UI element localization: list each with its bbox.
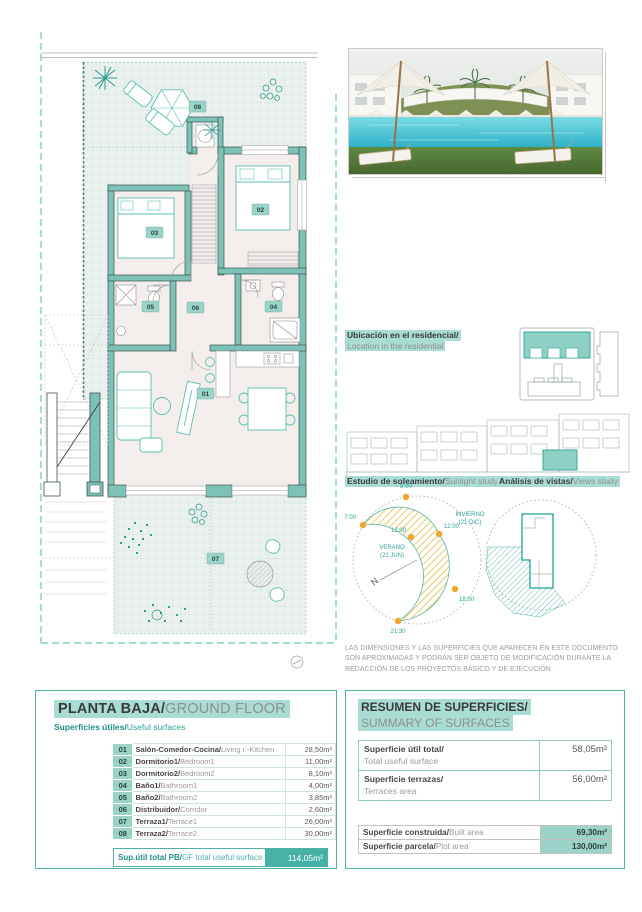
north-label: N	[369, 576, 380, 588]
summary-card: RESUMEN DE SUPERFICIES/ SUMMARY OF SURFA…	[345, 690, 625, 869]
table-row: 03Dormitorio2/Bedroom28,10m²	[114, 768, 336, 780]
room-label-04: 04	[265, 301, 282, 312]
table-row: Superficie terrazas/Terraces area 56,00m…	[359, 771, 612, 801]
svg-text:02: 02	[257, 207, 265, 214]
ground-floor-subtitle: Superficies útiles/Useful surfaces	[54, 722, 336, 732]
table-row: Superficie útil total/Total useful surfa…	[359, 741, 612, 771]
svg-text:(21 DIC): (21 DIC)	[459, 520, 482, 526]
room-label-03: 03	[146, 227, 163, 238]
svg-text:18:00: 18:00	[459, 597, 475, 603]
table-row: 02Dormitorio1/Bedroom111,00m²	[114, 756, 336, 768]
svg-text:7:00: 7:00	[344, 515, 356, 521]
photo-frame-line-right	[605, 52, 606, 182]
svg-text:01: 01	[202, 391, 210, 398]
highlighted-block	[524, 332, 590, 358]
table-row: 05Baño2/Bathroom23,85m²	[114, 792, 336, 804]
svg-text:8:00: 8:00	[400, 484, 412, 490]
room-surfaces-table: 01Salón-Comedor-Cocina/Living r.-Kitchen…	[113, 743, 336, 840]
table-row: 01Salón-Comedor-Cocina/Living r.-Kitchen…	[114, 744, 336, 756]
photo-frame-line-bottom	[352, 177, 605, 178]
svg-text:06: 06	[192, 305, 200, 312]
table-row: 07Terraza1/Terrace126,00m²	[114, 816, 336, 828]
table-row: Superficie parcela/Plot area 130,00m²	[359, 840, 612, 854]
summary-table-useful: Superficie útil total/Total useful surfa…	[358, 740, 612, 801]
room-label-08: 08	[189, 101, 206, 112]
summary-table-built: Superficie construida/Built area 69,30m²…	[358, 825, 612, 854]
location-title: Ubicación en el residencial/ Location in…	[345, 330, 461, 351]
sunlight-diagram: N 8:00 7:00 12:00 VERANO (21 JUN) 12:00 …	[340, 470, 495, 640]
ground-floor-title: PLANTA BAJA/GROUND FLOOR	[54, 700, 290, 718]
room-label-07: 07	[207, 553, 224, 564]
svg-text:05: 05	[147, 304, 155, 311]
table-row: 06Distribuidor/Corridor2,60m²	[114, 804, 336, 816]
svg-text:INVIERNO: INVIERNO	[455, 512, 484, 518]
disclaimer-text: LAS DIMENSIONES Y LAS SUPERFICIES QUE AP…	[345, 644, 627, 675]
svg-text:(21 JUN): (21 JUN)	[380, 553, 404, 559]
views-diagram	[483, 470, 630, 640]
pool-photo	[348, 48, 603, 175]
room-label-01: 01	[197, 388, 214, 399]
total-useful-surface: Sup.útil total PB/GF total useful surfac…	[113, 848, 328, 867]
floor-plan: 01 02 03 04 05 06 07 08	[20, 30, 340, 680]
page: { "page": { "accent": "#2ba196" }, "phot…	[0, 0, 642, 912]
svg-text:VERANO: VERANO	[379, 545, 405, 551]
ground-floor-card: PLANTA BAJA/GROUND FLOOR Superficies úti…	[35, 690, 337, 869]
compass-mark	[291, 656, 303, 668]
svg-text:04: 04	[270, 304, 278, 311]
room-label-06: 06	[187, 302, 204, 313]
svg-text:07: 07	[212, 556, 220, 563]
sun-band	[363, 507, 449, 621]
pool	[349, 117, 602, 147]
highlighted-unit	[543, 450, 577, 470]
room-label-02: 02	[252, 204, 269, 215]
svg-text:12:00: 12:00	[391, 528, 407, 534]
summary-title: RESUMEN DE SUPERFICIES/ SUMMARY OF SURFA…	[358, 699, 624, 731]
site-plan-inset	[518, 326, 626, 404]
room-label-05: 05	[142, 301, 159, 312]
table-row: 08Terraza2/Terrace230,00m²	[114, 828, 336, 840]
svg-text:12:00: 12:00	[444, 524, 460, 530]
total-value-chip: 114,05m²	[265, 849, 327, 866]
svg-text:08: 08	[194, 104, 202, 111]
svg-text:21:30: 21:30	[390, 629, 406, 635]
svg-text:03: 03	[151, 230, 159, 237]
table-row: Superficie construida/Built area 69,30m²	[359, 826, 612, 840]
table-row: 04Baño1/Bathroom14,00m²	[114, 780, 336, 792]
